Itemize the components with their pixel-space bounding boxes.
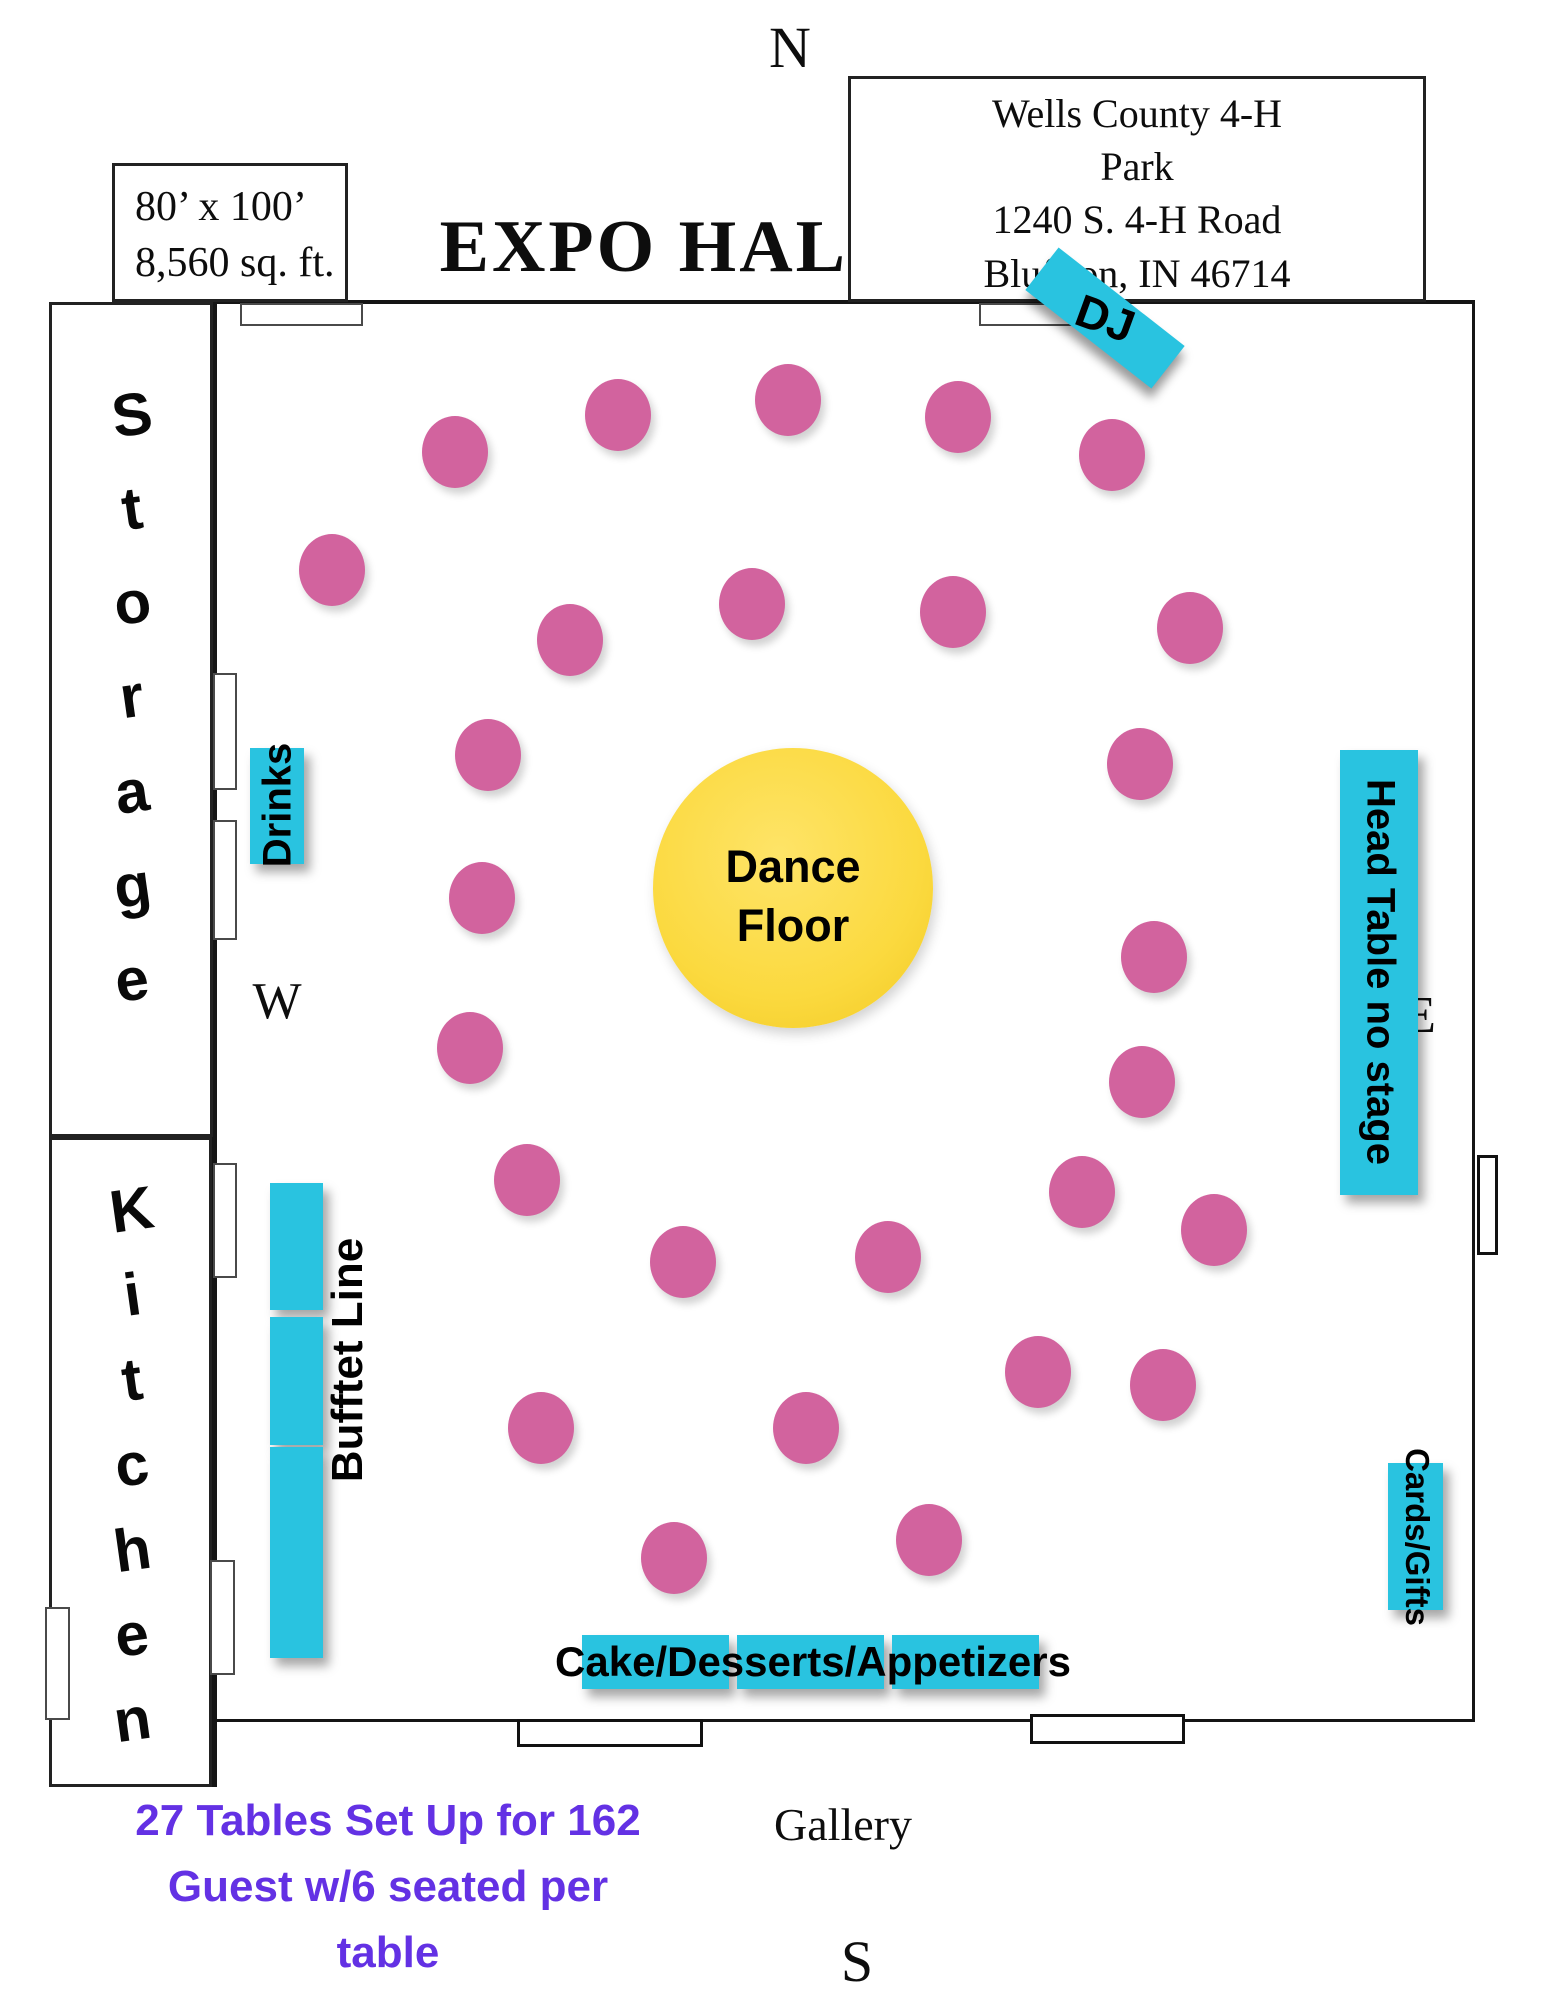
- room-letter: i: [120, 1264, 145, 1326]
- door-opening: [213, 820, 237, 940]
- room-letter: e: [111, 1603, 152, 1667]
- guest-table: [1130, 1349, 1196, 1421]
- room-letter: n: [110, 1688, 155, 1753]
- dance-floor: Dance Floor: [653, 748, 933, 1028]
- buffet-line-label: Bufftet Line: [323, 1238, 373, 1482]
- guest-table: [719, 568, 785, 640]
- head-table-label: Head Table no stage: [1358, 779, 1403, 1165]
- room-letter: e: [111, 948, 152, 1012]
- storage-label: Storage: [92, 385, 172, 1010]
- room-letter: o: [110, 571, 155, 636]
- room-letter: h: [110, 1518, 155, 1583]
- guest-table: [1121, 921, 1187, 993]
- tables-note: 27 Tables Set Up for 162 Guest w/6 seate…: [108, 1788, 668, 1986]
- door-opening: [210, 1560, 235, 1675]
- room-letter: t: [118, 478, 146, 540]
- room-letter: g: [110, 854, 155, 919]
- room-letter: a: [111, 760, 152, 824]
- compass-north: N: [769, 14, 811, 81]
- guest-table: [650, 1226, 716, 1298]
- address-box: Wells County 4-H Park 1240 S. 4-H Road B…: [848, 76, 1426, 302]
- address-line3: 1240 S. 4-H Road: [851, 193, 1423, 246]
- room-letter: t: [118, 1349, 146, 1411]
- guest-table: [1107, 728, 1173, 800]
- guest-table: [920, 576, 986, 648]
- door-opening: [45, 1607, 70, 1720]
- cake-desserts-label: Cake/Desserts/Appetizers: [555, 1638, 1071, 1686]
- room-letter: S: [108, 383, 156, 448]
- guest-table: [773, 1392, 839, 1464]
- door-opening: [213, 1163, 237, 1278]
- guest-table: [1157, 592, 1223, 664]
- dimensions-line1: 80’ x 100’: [135, 180, 345, 236]
- bottom-wall: [212, 1719, 1475, 1722]
- guest-table: [641, 1522, 707, 1594]
- dimensions-box: 80’ x 100’ 8,560 sq. ft.: [112, 163, 348, 302]
- room-letter: K: [106, 1177, 157, 1242]
- address-line4: Bluffton, IN 46714: [851, 247, 1423, 300]
- tables-note-line2: Guest w/6 seated per: [108, 1854, 668, 1920]
- tables-note-line1: 27 Tables Set Up for 162: [108, 1788, 668, 1854]
- door-opening: [1030, 1714, 1185, 1744]
- room-letter: r: [116, 666, 147, 729]
- guest-table: [1049, 1156, 1115, 1228]
- door-opening: [517, 1719, 703, 1747]
- dance-floor-label-line1: Dance: [725, 837, 860, 896]
- right-wall: [1472, 300, 1475, 1722]
- guest-table: [422, 416, 488, 488]
- guest-table: [855, 1221, 921, 1293]
- guest-table: [1109, 1046, 1175, 1118]
- room-letter: c: [111, 1433, 152, 1497]
- guest-table: [1181, 1194, 1247, 1266]
- guest-table: [896, 1504, 962, 1576]
- expo-hall-floor-plan: Storage Kitchen 80’ x 100’ 8,560 sq. ft.…: [0, 0, 1545, 2000]
- drinks-label: Drinks: [256, 743, 301, 868]
- guest-table: [508, 1392, 574, 1464]
- buffet-table: [270, 1317, 323, 1445]
- guest-table: [299, 534, 365, 606]
- compass-west: W: [252, 972, 301, 1031]
- address-line1: Wells County 4-H: [851, 87, 1423, 140]
- guest-table: [585, 379, 651, 451]
- door-opening: [240, 303, 363, 326]
- guest-table: [455, 719, 521, 791]
- cards-gifts-label: Cards/Gifts: [1398, 1448, 1436, 1626]
- guest-table: [437, 1012, 503, 1084]
- compass-south: S: [841, 1928, 873, 1995]
- buffet-table: [270, 1447, 323, 1658]
- address-line2: Park: [851, 140, 1423, 193]
- dance-floor-label-line2: Floor: [737, 896, 849, 955]
- kitchen-label: Kitchen: [92, 1180, 172, 1750]
- guest-table: [1079, 419, 1145, 491]
- page-title: EXPO HALL: [440, 205, 901, 290]
- guest-table: [537, 604, 603, 676]
- tables-note-line3: table: [108, 1920, 668, 1986]
- guest-table: [925, 381, 991, 453]
- guest-table: [1005, 1336, 1071, 1408]
- gallery-label: Gallery: [774, 1798, 912, 1851]
- buffet-table: [270, 1183, 323, 1310]
- guest-table: [755, 364, 821, 436]
- door-opening: [213, 673, 237, 790]
- guest-table: [494, 1144, 560, 1216]
- dimensions-line2: 8,560 sq. ft.: [135, 236, 345, 292]
- guest-table: [449, 862, 515, 934]
- door-opening: [1477, 1155, 1498, 1255]
